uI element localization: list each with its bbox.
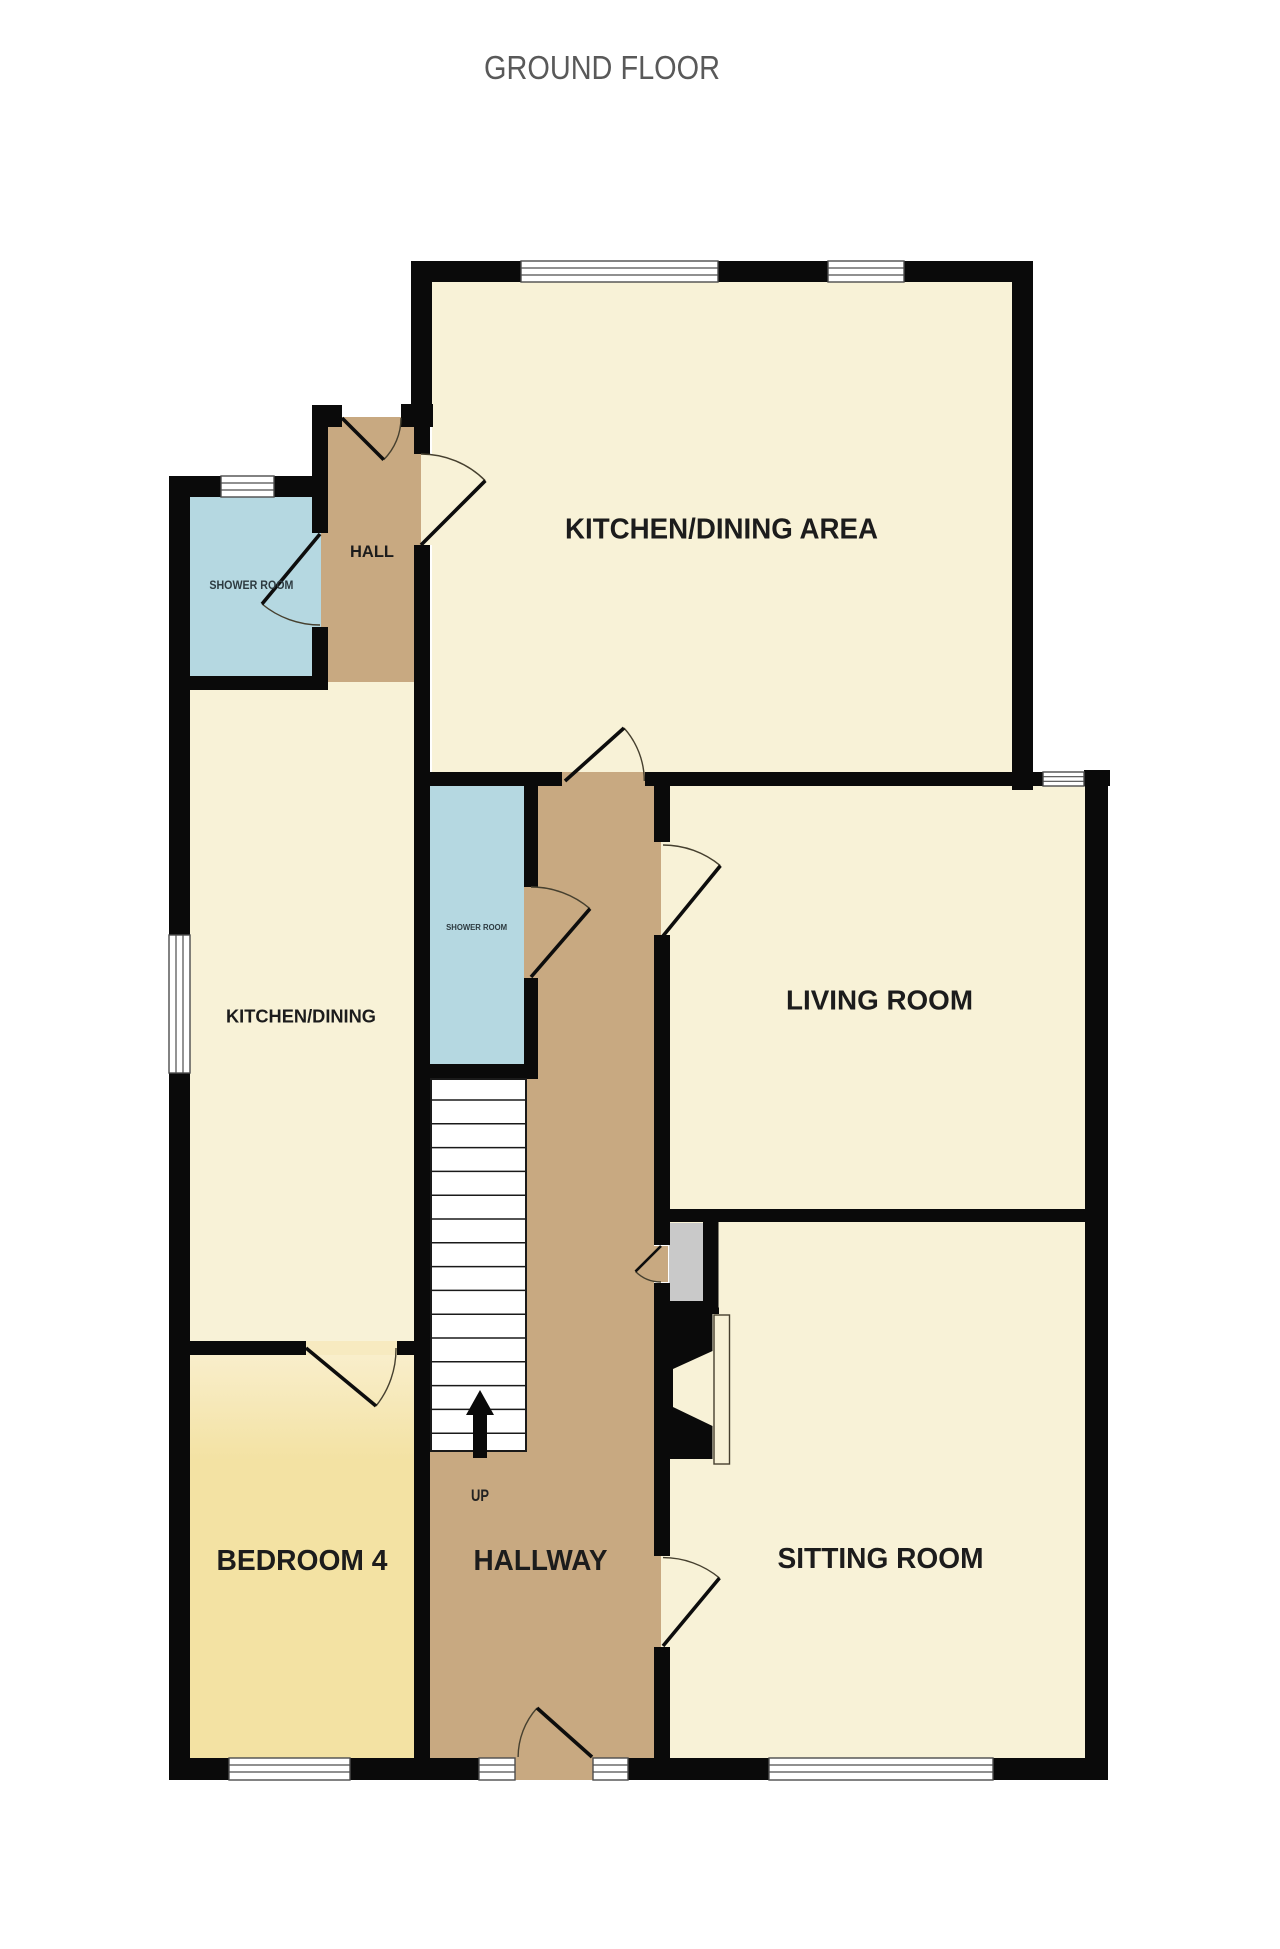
svg-text:GROUND FLOOR: GROUND FLOOR xyxy=(484,49,720,86)
svg-text:HALL: HALL xyxy=(350,542,394,561)
svg-text:SHOWER ROOM: SHOWER ROOM xyxy=(209,580,293,592)
svg-text:KITCHEN/DINING: KITCHEN/DINING xyxy=(226,1005,376,1026)
svg-text:HALLWAY: HALLWAY xyxy=(474,1545,608,1577)
svg-text:UP: UP xyxy=(471,1486,489,1505)
svg-text:BEDROOM 4: BEDROOM 4 xyxy=(217,1545,388,1577)
svg-text:KITCHEN/DINING AREA: KITCHEN/DINING AREA xyxy=(565,513,878,545)
svg-text:SHOWER ROOM: SHOWER ROOM xyxy=(446,922,507,932)
svg-text:SITTING ROOM: SITTING ROOM xyxy=(778,1543,984,1575)
svg-text:LIVING ROOM: LIVING ROOM xyxy=(786,984,973,1015)
